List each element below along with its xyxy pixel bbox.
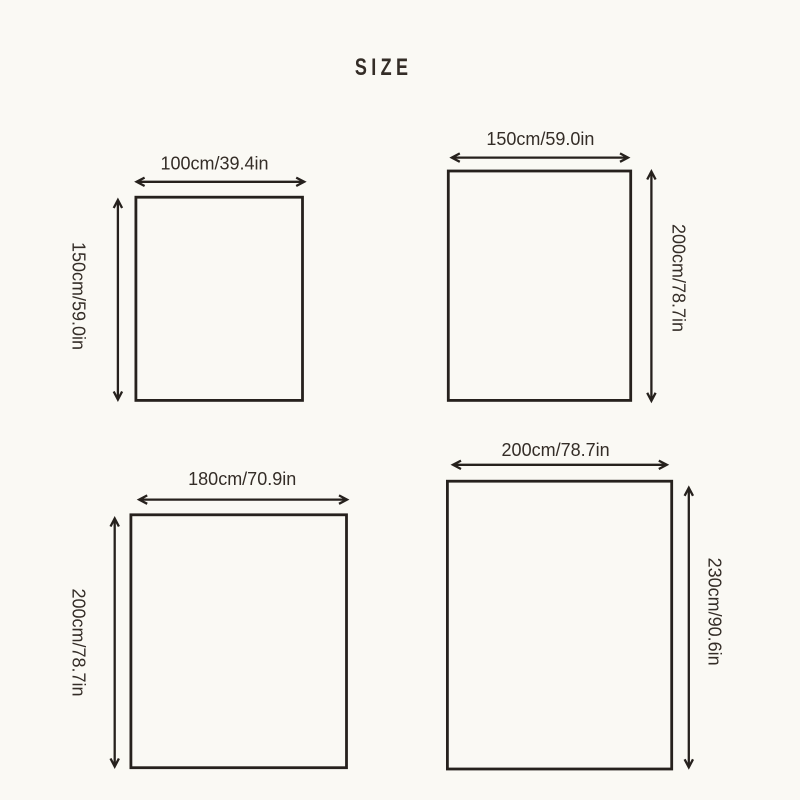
svg-text:200cm/78.7in: 200cm/78.7in (669, 224, 689, 332)
svg-text:230cm/90.6in: 230cm/90.6in (704, 558, 724, 666)
svg-text:150cm/59.0in: 150cm/59.0in (486, 129, 594, 149)
svg-text:100cm/39.4in: 100cm/39.4in (160, 154, 268, 174)
svg-text:200cm/78.7in: 200cm/78.7in (69, 588, 89, 696)
svg-text:150cm/59.0in: 150cm/59.0in (69, 242, 89, 350)
svg-text:200cm/78.7in: 200cm/78.7in (502, 440, 610, 460)
svg-text:SIZE: SIZE (355, 55, 412, 81)
svg-text:180cm/70.9in: 180cm/70.9in (188, 469, 296, 489)
